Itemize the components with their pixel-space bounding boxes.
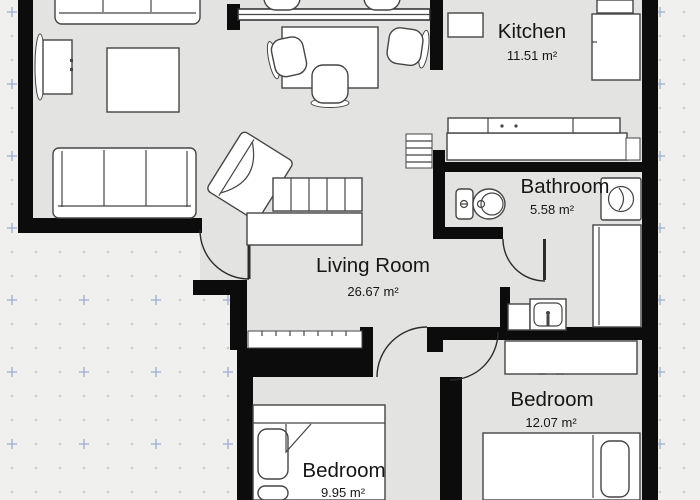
toilet[interactable] [456, 189, 505, 219]
radiator-living[interactable] [406, 134, 432, 168]
window[interactable] [238, 9, 430, 20]
sofa-top[interactable] [55, 0, 200, 24]
double-bed-right[interactable] [483, 433, 640, 500]
bedroom-right-label: Bedroom [510, 388, 593, 411]
kitchen-counter[interactable] [447, 118, 640, 160]
fridge[interactable] [592, 14, 640, 80]
shelf-unit[interactable] [273, 178, 362, 211]
bedroom-right-area: 12.07 m² [525, 415, 577, 430]
radiator-bedroom[interactable] [248, 331, 362, 348]
living-room-label: Living Room [316, 254, 430, 277]
bedroom-bottom-area: 9.95 m² [321, 485, 366, 500]
bathroom-counter[interactable] [508, 304, 530, 330]
wardrobe[interactable] [505, 341, 637, 374]
living-room-area: 26.67 m² [347, 284, 399, 299]
tv-unit[interactable] [35, 34, 73, 100]
sofa-left[interactable] [53, 148, 196, 218]
coffee-table[interactable] [107, 48, 179, 112]
bathroom-label: Bathroom [521, 175, 610, 198]
kitchen-label: Kitchen [498, 20, 566, 43]
floor-plan-canvas: Kitchen 11.51 m² Bathroom 5.58 m² Living… [0, 0, 700, 500]
sideboard[interactable] [247, 213, 362, 245]
bathroom-area: 5.58 m² [530, 202, 575, 217]
kitchen-area: 11.51 m² [507, 48, 558, 63]
bathroom-sink[interactable] [530, 299, 566, 330]
bedroom-bottom-label: Bedroom [302, 459, 385, 482]
double-bed-bottom[interactable] [253, 405, 385, 500]
shower[interactable] [593, 225, 641, 327]
